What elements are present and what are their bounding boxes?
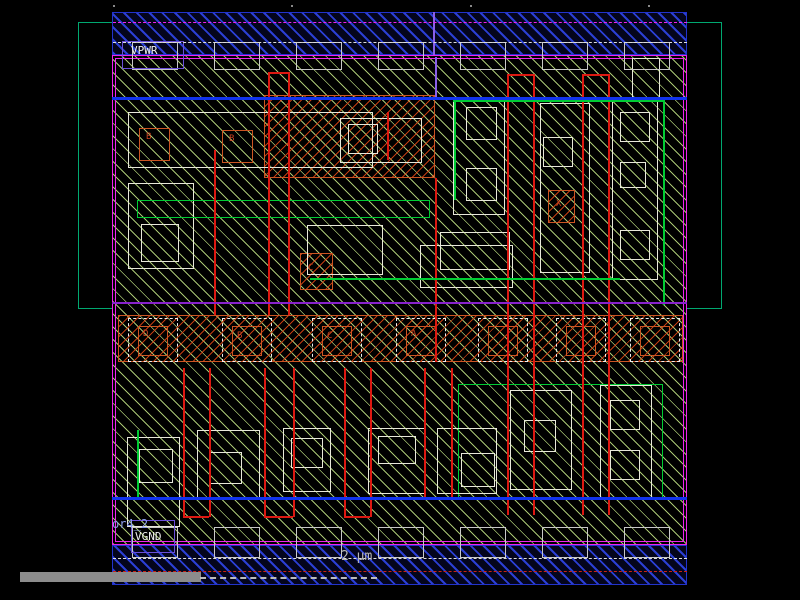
contact-square [524, 420, 556, 452]
rail-contact [460, 527, 506, 558]
poly-gate [435, 178, 437, 362]
poly-gate [264, 368, 266, 517]
vpwr-label-box [122, 41, 184, 69]
rail-contact [296, 42, 342, 70]
poly-gate [451, 368, 453, 497]
vpwr-label: VPWR [131, 45, 158, 56]
route-green [310, 278, 620, 280]
rail-dashed-red [113, 571, 687, 572]
contact-box-b1 [139, 128, 170, 161]
diff-rect [437, 428, 497, 494]
diff-rect [420, 245, 513, 288]
diff-rect [128, 112, 373, 168]
diff-rect [307, 225, 383, 275]
contact-box-b2 [222, 130, 253, 163]
diff-rect [127, 437, 180, 527]
purple-via [435, 57, 437, 97]
contact-square [620, 112, 650, 142]
poly-gate [387, 112, 389, 160]
contact-outer [340, 118, 422, 163]
band-contact [128, 318, 178, 362]
diff-rect [283, 428, 331, 492]
grid-dot [291, 5, 293, 7]
diff-rect [128, 183, 194, 269]
band-contact [222, 318, 272, 362]
contact-square [543, 137, 573, 167]
pin-label-c: C [327, 332, 332, 341]
rail-dashed-white [113, 558, 687, 559]
scrollbar-horizontal[interactable] [20, 572, 201, 582]
contact-square [461, 453, 495, 487]
pin-label-d: D [143, 330, 148, 339]
pin-label-c: C [308, 264, 313, 273]
rail-contact [378, 527, 424, 558]
contact-square [610, 400, 640, 430]
poly-gate [608, 74, 610, 515]
metal1-strap [112, 97, 687, 100]
scale-label: 2 µm [341, 550, 372, 563]
grid-dot [470, 5, 472, 7]
vgnd-rail [112, 545, 687, 585]
well-boundary-line [112, 302, 687, 304]
route-green [137, 430, 139, 497]
poly-pad-x [548, 190, 575, 223]
poly-bridge [264, 516, 293, 518]
poly-pad-c [300, 253, 333, 290]
layout-canvas[interactable]: VPWRVGNDor4_22 µmBBCXDBCA [0, 0, 800, 600]
pin-label-b: B [229, 135, 234, 144]
rail-contact [214, 527, 260, 558]
band-contact-inner [566, 326, 596, 356]
poly-gate [582, 74, 584, 515]
band-contact [312, 318, 362, 362]
diff-rect [612, 100, 658, 280]
contact-square [139, 449, 173, 483]
rail-contact [296, 527, 342, 558]
rail-contact [214, 42, 260, 70]
vgnd-label: VGND [135, 531, 162, 542]
poly-gate [268, 72, 270, 315]
route-green [454, 100, 456, 200]
nwell-dashed-top [113, 22, 687, 23]
contact-square [620, 230, 650, 260]
poly-bridge [344, 516, 370, 518]
poly-gate [533, 74, 535, 515]
pin-label-x: X [556, 200, 561, 209]
purple-via [433, 12, 435, 55]
contact-square [378, 436, 416, 464]
layout-viewer-screen: VPWRVGNDor4_22 µmBBCXDBCA [0, 0, 800, 600]
band-contact [630, 318, 680, 362]
poly-gate [214, 150, 216, 315]
poly-band-hatched [118, 315, 683, 362]
poly-gate [370, 368, 372, 517]
rail-contact [542, 527, 588, 558]
contact-square [466, 107, 497, 140]
rail-contact [624, 42, 670, 70]
band-contact-inner [322, 326, 352, 356]
cell-boundary-outer [112, 55, 687, 545]
band-contact-inner [232, 326, 262, 356]
poly-bridge [183, 516, 209, 518]
route-green-rect [458, 384, 663, 498]
grid-dot [648, 5, 650, 7]
route-green [663, 100, 665, 305]
band-contact [396, 318, 446, 362]
rail-contact [132, 42, 178, 70]
vpwr-rail [112, 12, 687, 55]
poly-gate [209, 368, 211, 517]
diff-rect [510, 390, 572, 490]
route-green-band [137, 200, 430, 218]
band-contact-inner [488, 326, 518, 356]
ruler-dashes [200, 577, 377, 579]
rail-contact [624, 527, 670, 558]
diff-rect [632, 58, 660, 98]
contact-square [620, 162, 646, 188]
contact-square [348, 124, 378, 154]
rail-contact [542, 42, 588, 70]
poly-gate [288, 72, 290, 315]
diff-rect [453, 100, 505, 215]
poly-gate [424, 368, 426, 497]
vgnd-label-box [131, 520, 175, 553]
contact-square [610, 450, 640, 480]
band-contact-inner [406, 326, 436, 356]
diff-rect [600, 385, 652, 498]
contact-square [210, 452, 242, 484]
grid-dot [113, 5, 115, 7]
cell-boundary-inner [115, 58, 684, 542]
poly-gate [293, 368, 295, 517]
contact-square [141, 224, 179, 262]
poly-pad-hatched [264, 95, 435, 178]
band-contact [478, 318, 528, 362]
pin-label-b: B [237, 332, 242, 341]
diff-rect [197, 430, 260, 500]
pin-label-a: A [411, 330, 416, 339]
rail-dashed-white [113, 42, 687, 43]
nwell-outline [78, 22, 722, 309]
poly-bridge [268, 72, 288, 74]
contact-square [466, 168, 497, 201]
poly-bridge [507, 74, 533, 76]
diff-rect [368, 428, 426, 494]
band-contact-inner [640, 326, 670, 356]
route-green [453, 100, 663, 102]
band-contact-inner [138, 326, 168, 356]
contact-square [291, 438, 323, 468]
diff-rect [540, 103, 590, 273]
poly-gate [344, 368, 346, 517]
rail-contact [132, 527, 178, 558]
poly-gate [507, 74, 509, 515]
rail-contact [460, 42, 506, 70]
band-contact [556, 318, 606, 362]
diff-rect [440, 232, 510, 270]
poly-bridge [582, 74, 608, 76]
pin-label-b: B [146, 133, 151, 142]
instance-label: or4_2 [112, 518, 148, 530]
poly-gate [183, 368, 185, 517]
metal1-strap [112, 497, 687, 500]
rail-contact [378, 42, 424, 70]
